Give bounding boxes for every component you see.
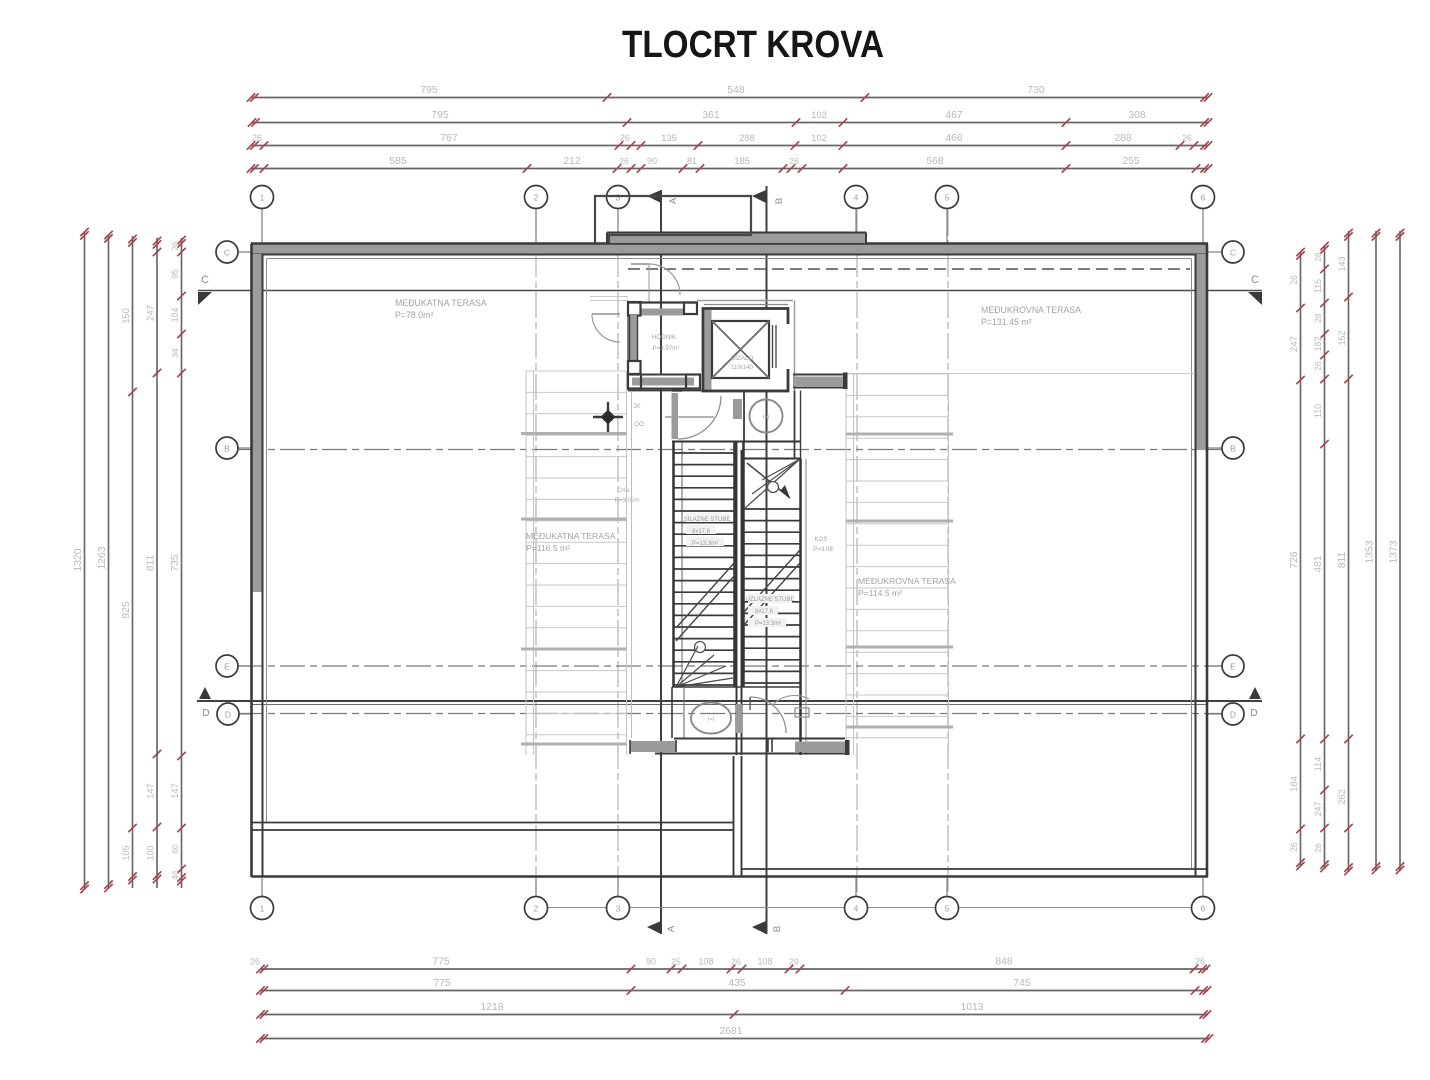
svg-text:105: 105 bbox=[121, 845, 131, 860]
svg-text:C: C bbox=[1251, 274, 1259, 286]
svg-text:114: 114 bbox=[1313, 757, 1323, 771]
svg-text:B: B bbox=[1230, 444, 1236, 454]
svg-text:KOS: KOS bbox=[814, 536, 827, 543]
svg-text:730: 730 bbox=[1027, 85, 1044, 96]
svg-text:B: B bbox=[774, 198, 785, 204]
svg-text:2: 2 bbox=[534, 193, 539, 203]
svg-text:90: 90 bbox=[646, 957, 656, 967]
svg-text:585: 585 bbox=[389, 156, 406, 167]
svg-text:34: 34 bbox=[170, 348, 180, 358]
svg-text:466: 466 bbox=[945, 133, 962, 144]
svg-text:726: 726 bbox=[1289, 551, 1300, 568]
svg-text:8x17,6: 8x17,6 bbox=[692, 529, 711, 535]
svg-text:212: 212 bbox=[563, 156, 580, 167]
svg-text:6: 6 bbox=[1201, 904, 1206, 914]
svg-text:26: 26 bbox=[252, 133, 262, 143]
svg-text:100: 100 bbox=[146, 846, 156, 861]
svg-text:2: 2 bbox=[534, 904, 539, 914]
svg-text:811: 811 bbox=[1337, 552, 1348, 569]
svg-text:255: 255 bbox=[1122, 156, 1139, 167]
svg-text:185: 185 bbox=[734, 156, 750, 166]
svg-text:795: 795 bbox=[420, 85, 437, 96]
svg-text:C: C bbox=[224, 248, 230, 258]
svg-text:26: 26 bbox=[620, 133, 630, 143]
svg-text:102: 102 bbox=[811, 133, 827, 143]
svg-text:25: 25 bbox=[671, 957, 681, 967]
svg-text:1218: 1218 bbox=[481, 1002, 504, 1013]
svg-text:1013: 1013 bbox=[961, 1002, 984, 1013]
svg-text:28: 28 bbox=[1313, 313, 1323, 323]
svg-text:3: 3 bbox=[616, 904, 621, 914]
svg-text:108: 108 bbox=[698, 957, 713, 967]
svg-text:247: 247 bbox=[1313, 801, 1323, 816]
svg-text:D: D bbox=[225, 710, 231, 720]
svg-text:A: A bbox=[666, 925, 677, 932]
svg-text:143: 143 bbox=[1337, 256, 1347, 271]
svg-text:26: 26 bbox=[1313, 361, 1323, 371]
svg-text:247: 247 bbox=[1289, 336, 1300, 352]
svg-text:110: 110 bbox=[1313, 404, 1323, 418]
svg-text:MEĐUKROVNA TERASA: MEĐUKROVNA TERASA bbox=[858, 576, 956, 586]
svg-text:262: 262 bbox=[1337, 789, 1347, 805]
svg-text:1373: 1373 bbox=[1389, 540, 1400, 563]
svg-text:A: A bbox=[668, 197, 679, 204]
svg-text:26: 26 bbox=[789, 156, 799, 166]
svg-text:288: 288 bbox=[1114, 133, 1131, 144]
svg-text:4: 4 bbox=[854, 904, 859, 914]
svg-text:147: 147 bbox=[170, 783, 180, 799]
svg-text:30: 30 bbox=[634, 403, 641, 410]
svg-text:135: 135 bbox=[661, 133, 677, 143]
svg-text:OO: OO bbox=[634, 421, 644, 428]
svg-text:MEĐUKROVNA TERASA: MEĐUKROVNA TERASA bbox=[981, 305, 1081, 315]
svg-text:1: 1 bbox=[260, 193, 265, 203]
svg-text:361: 361 bbox=[702, 110, 719, 121]
svg-text:4: 4 bbox=[854, 193, 859, 203]
svg-text:26: 26 bbox=[1195, 957, 1205, 967]
svg-text:104: 104 bbox=[170, 308, 180, 323]
svg-text:795: 795 bbox=[431, 110, 448, 121]
svg-text:l=l: l=l bbox=[763, 415, 769, 421]
svg-text:D: D bbox=[1250, 708, 1257, 719]
svg-text:95: 95 bbox=[170, 269, 180, 279]
svg-text:E: E bbox=[224, 662, 230, 672]
svg-text:26: 26 bbox=[1289, 842, 1299, 852]
svg-text:26: 26 bbox=[731, 957, 741, 967]
svg-text:E: E bbox=[1230, 662, 1236, 672]
svg-text:745: 745 bbox=[1013, 978, 1030, 989]
svg-text:568: 568 bbox=[926, 156, 943, 167]
svg-text:1263: 1263 bbox=[97, 546, 108, 569]
svg-text:308: 308 bbox=[1128, 110, 1145, 121]
svg-text:548: 548 bbox=[727, 85, 744, 96]
svg-text:P=13.3m²: P=13.3m² bbox=[755, 621, 781, 627]
svg-text:767: 767 bbox=[440, 133, 457, 144]
svg-text:DIZALO: DIZALO bbox=[731, 355, 754, 362]
svg-text:2681: 2681 bbox=[720, 1026, 743, 1037]
svg-text:26: 26 bbox=[170, 241, 180, 251]
svg-text:TLOCRT KROVA: TLOCRT KROVA bbox=[622, 24, 884, 66]
svg-text:26: 26 bbox=[1289, 275, 1299, 285]
svg-text:5: 5 bbox=[945, 193, 950, 203]
svg-text:HODNIK: HODNIK bbox=[652, 334, 677, 341]
svg-text:1320: 1320 bbox=[73, 548, 84, 571]
svg-text:288: 288 bbox=[739, 133, 755, 144]
svg-text:90: 90 bbox=[647, 156, 657, 166]
svg-text:B: B bbox=[224, 444, 230, 454]
svg-text:C: C bbox=[1230, 248, 1236, 258]
svg-text:P=114.5 m²: P=114.5 m² bbox=[858, 588, 902, 598]
svg-text:29: 29 bbox=[789, 957, 799, 967]
svg-text:102: 102 bbox=[811, 110, 827, 120]
svg-text:P=3.05m: P=3.05m bbox=[615, 497, 640, 504]
svg-text:46: 46 bbox=[170, 870, 180, 880]
svg-text:81: 81 bbox=[687, 156, 697, 166]
svg-text:775: 775 bbox=[432, 957, 449, 968]
svg-text:D: D bbox=[1230, 710, 1236, 720]
svg-text:l=l: l=l bbox=[708, 717, 714, 723]
svg-text:811: 811 bbox=[146, 555, 157, 572]
svg-text:735: 735 bbox=[170, 554, 181, 571]
svg-text:435: 435 bbox=[728, 978, 745, 989]
svg-text:P=3.08: P=3.08 bbox=[813, 546, 833, 553]
svg-text:26: 26 bbox=[250, 957, 260, 967]
svg-text:P=3.97m²: P=3.97m² bbox=[653, 345, 680, 352]
svg-text:P=78.0m²: P=78.0m² bbox=[395, 310, 433, 320]
svg-text:28: 28 bbox=[1313, 252, 1323, 262]
svg-text:147: 147 bbox=[146, 783, 156, 799]
svg-text:60: 60 bbox=[170, 844, 180, 854]
svg-text:925: 925 bbox=[121, 601, 132, 618]
svg-text:182: 182 bbox=[1313, 337, 1323, 352]
svg-text:115: 115 bbox=[1313, 279, 1323, 293]
svg-text:MEĐUKATNA TERASA: MEĐUKATNA TERASA bbox=[526, 531, 616, 541]
svg-text:1353: 1353 bbox=[1365, 540, 1376, 563]
svg-text:6: 6 bbox=[1201, 193, 1206, 203]
svg-text:26: 26 bbox=[1182, 133, 1192, 143]
svg-text:P=131.45 m²: P=131.45 m² bbox=[981, 317, 1032, 327]
svg-text:481: 481 bbox=[1313, 555, 1324, 572]
svg-text:C: C bbox=[201, 274, 209, 286]
svg-text:108: 108 bbox=[757, 957, 772, 967]
svg-text:3: 3 bbox=[616, 193, 621, 203]
svg-text:184: 184 bbox=[1289, 776, 1299, 792]
svg-text:24a: 24a bbox=[619, 487, 630, 494]
svg-text:P=116.5 m²: P=116.5 m² bbox=[526, 543, 570, 553]
svg-text:110/140: 110/140 bbox=[731, 364, 753, 371]
svg-text:247: 247 bbox=[146, 305, 157, 321]
svg-text:26: 26 bbox=[619, 156, 629, 166]
svg-text:MEĐUKATNA TERASA: MEĐUKATNA TERASA bbox=[395, 298, 487, 308]
svg-text:848: 848 bbox=[995, 957, 1012, 968]
svg-text:8x17,6: 8x17,6 bbox=[755, 609, 774, 615]
svg-text:26: 26 bbox=[1313, 843, 1323, 853]
svg-text:D: D bbox=[202, 708, 209, 719]
svg-text:5: 5 bbox=[945, 904, 950, 914]
svg-text:152: 152 bbox=[1337, 330, 1347, 345]
svg-text:B: B bbox=[772, 926, 783, 932]
svg-text:UZLAZNE STUBE: UZLAZNE STUBE bbox=[745, 597, 794, 603]
svg-text:150: 150 bbox=[121, 308, 131, 324]
svg-text:775: 775 bbox=[433, 978, 450, 989]
svg-text:467: 467 bbox=[945, 110, 962, 121]
svg-text:P=13.3m²: P=13.3m² bbox=[692, 541, 718, 547]
svg-text:SILAZNE STUBE: SILAZNE STUBE bbox=[684, 517, 731, 523]
svg-text:1: 1 bbox=[260, 904, 265, 914]
